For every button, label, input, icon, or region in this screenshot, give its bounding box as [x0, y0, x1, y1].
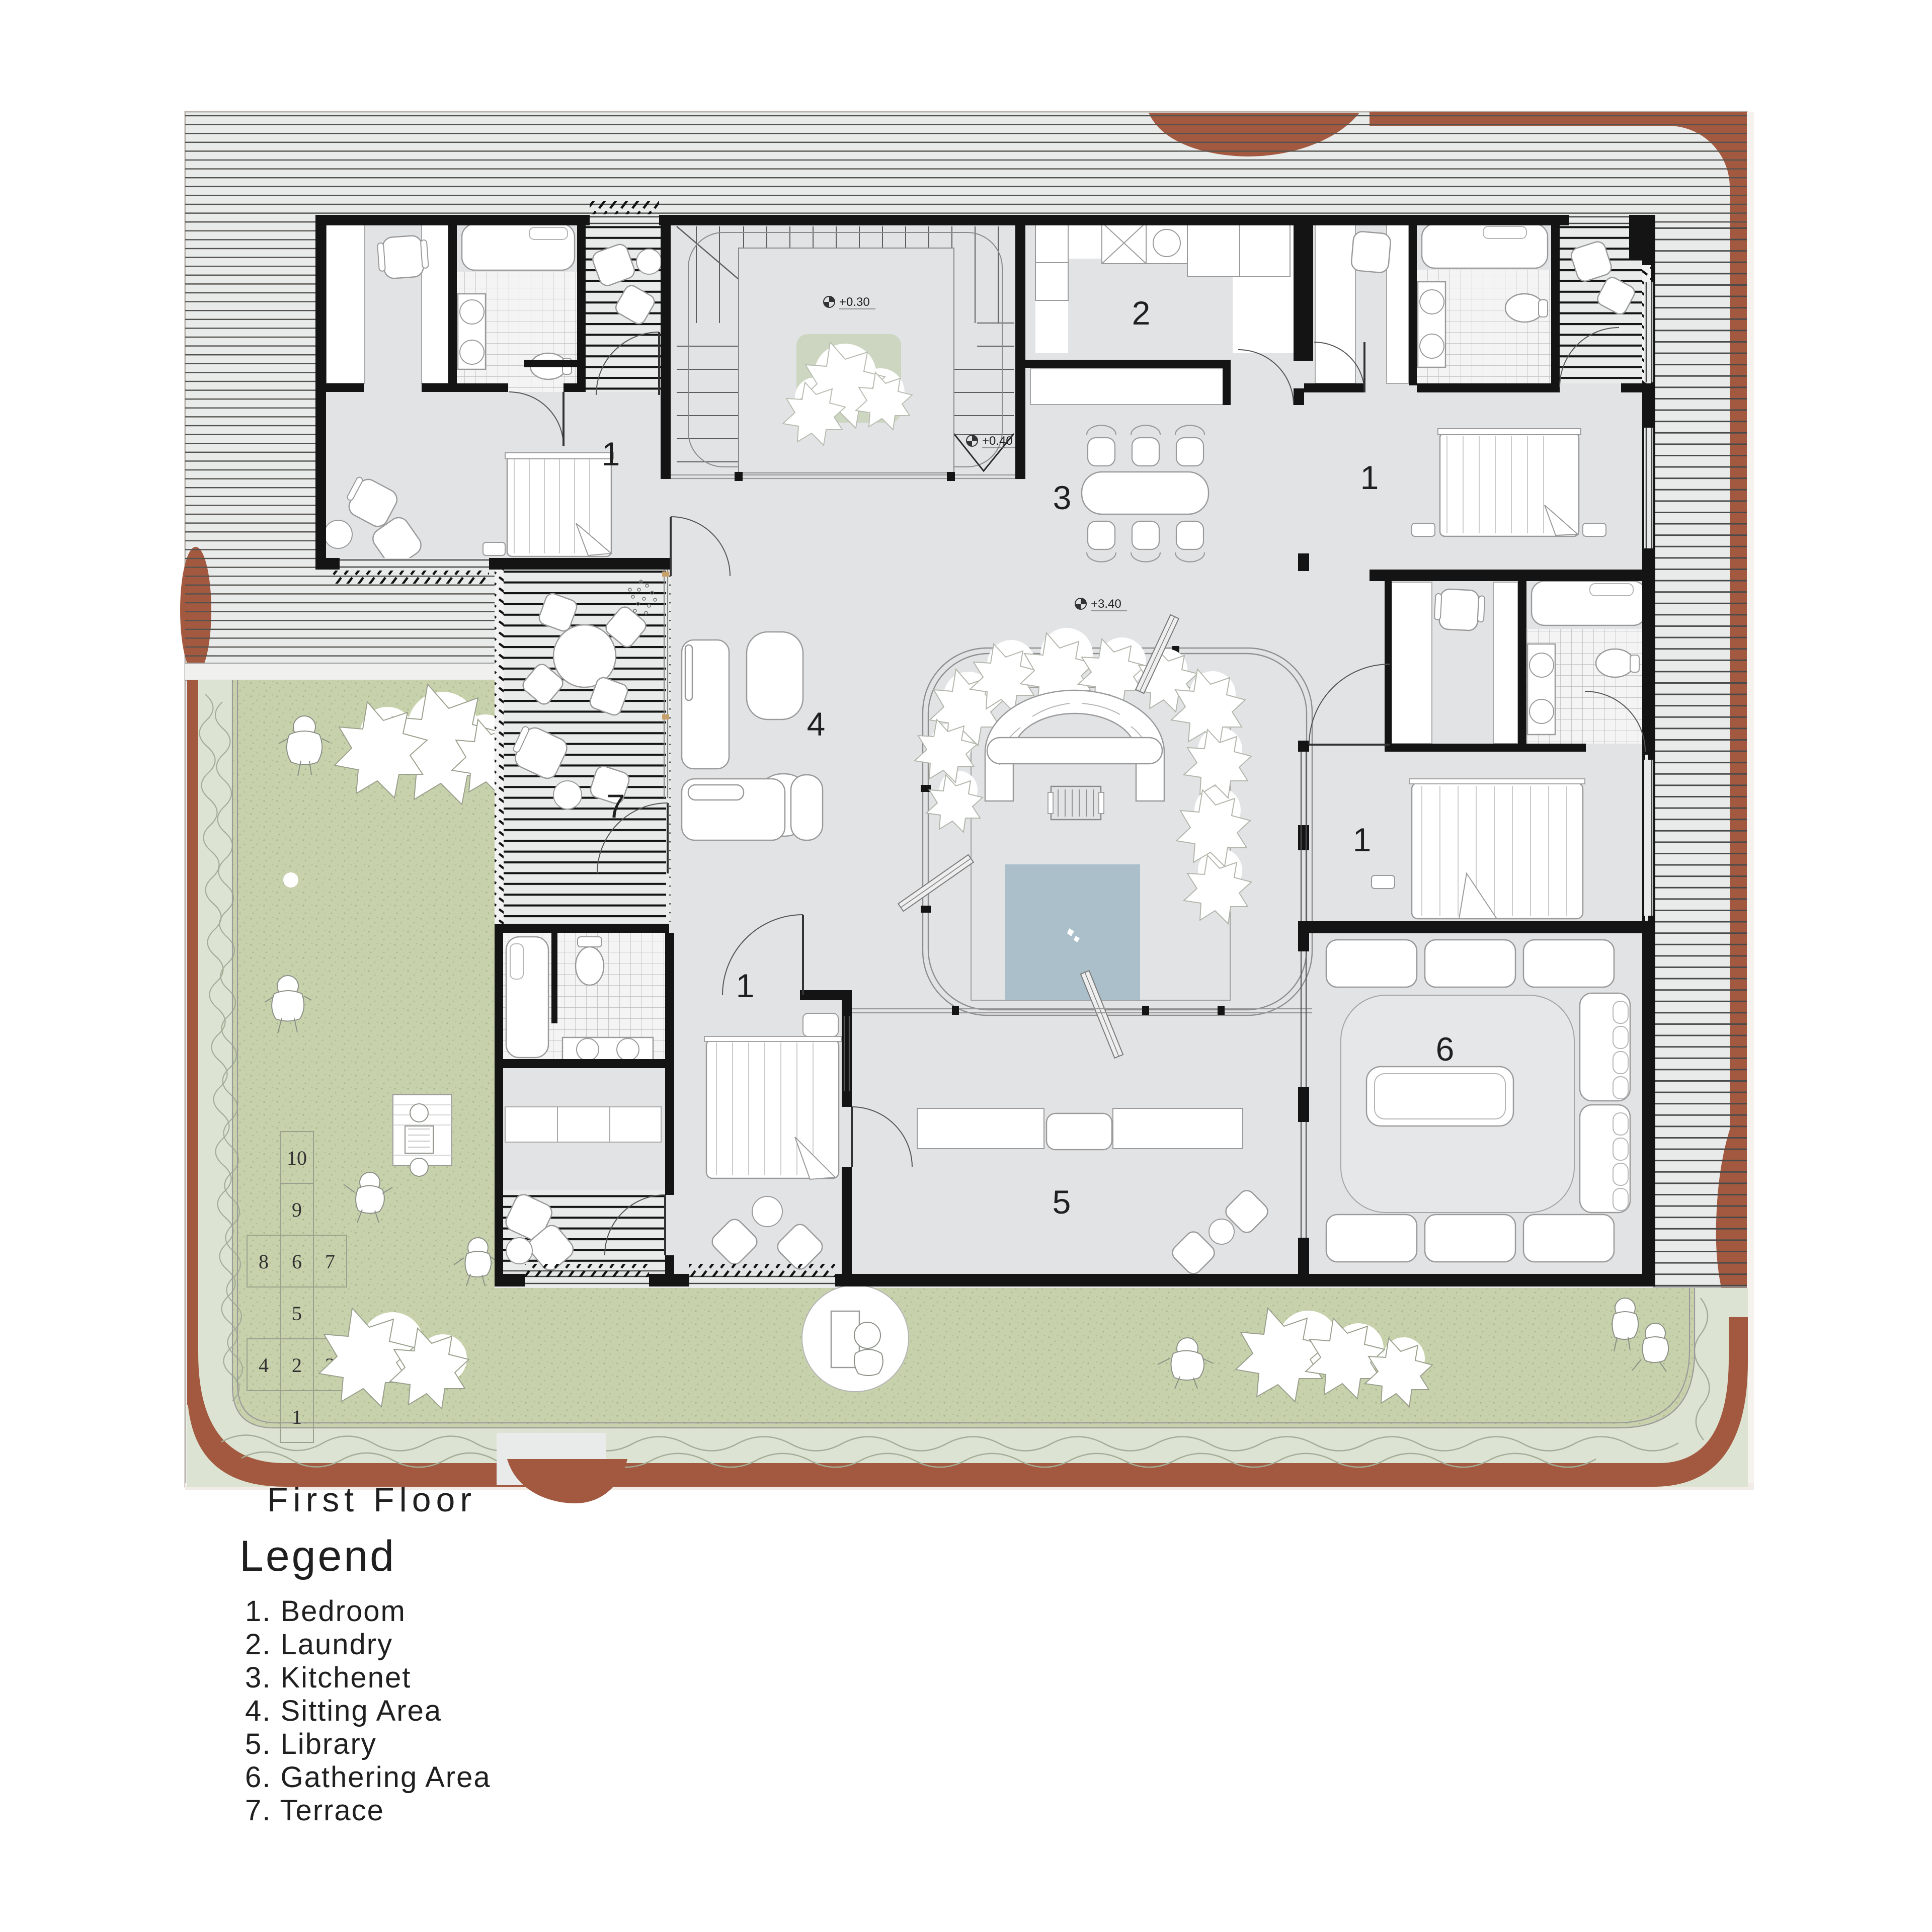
svg-text:+0.30: +0.30 [839, 295, 870, 309]
svg-text:4: 4 [259, 1354, 269, 1377]
svg-text:8: 8 [259, 1250, 269, 1273]
svg-text:1: 1 [1353, 821, 1372, 858]
svg-text:Legend: Legend [239, 1532, 396, 1580]
svg-text:1: 1 [292, 1406, 302, 1428]
svg-text:5: 5 [1053, 1183, 1071, 1221]
svg-text:5: 5 [292, 1302, 302, 1325]
svg-text:4. Sitting Area: 4. Sitting Area [245, 1695, 442, 1727]
svg-text:6: 6 [1436, 1030, 1455, 1068]
svg-text:10: 10 [287, 1147, 307, 1169]
svg-text:7. Terrace: 7. Terrace [245, 1794, 384, 1827]
svg-text:7: 7 [325, 1250, 335, 1273]
svg-text:1: 1 [736, 967, 755, 1004]
svg-text:1: 1 [602, 435, 620, 472]
svg-text:7: 7 [607, 787, 625, 825]
svg-text:First Floor: First Floor [267, 1481, 476, 1519]
svg-text:1. Bedroom: 1. Bedroom [245, 1595, 406, 1628]
svg-text:2. Laundry: 2. Laundry [245, 1628, 393, 1661]
svg-text:+3.40: +3.40 [1091, 597, 1121, 611]
svg-text:6. Gathering Area: 6. Gathering Area [245, 1761, 491, 1794]
svg-text:+0.40: +0.40 [982, 434, 1013, 448]
svg-text:3. Kitchenet: 3. Kitchenet [245, 1661, 411, 1694]
svg-text:2: 2 [292, 1354, 302, 1377]
svg-text:1: 1 [1360, 459, 1379, 496]
svg-text:4: 4 [807, 705, 826, 743]
svg-text:6: 6 [292, 1250, 302, 1273]
svg-text:5. Library: 5. Library [245, 1728, 377, 1760]
svg-text:9: 9 [292, 1198, 302, 1221]
svg-text:3: 3 [1053, 479, 1072, 516]
svg-text:2: 2 [1132, 294, 1151, 332]
